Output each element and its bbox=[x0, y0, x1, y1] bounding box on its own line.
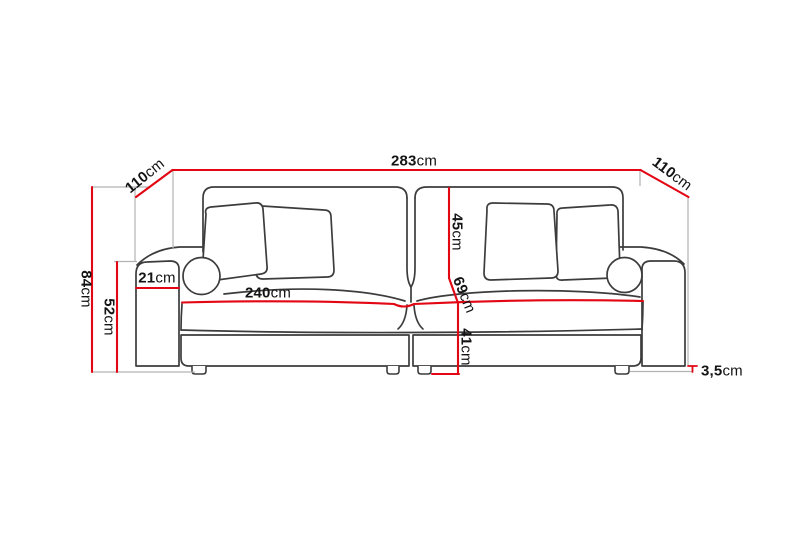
sofa-dimension-diagram: 283cm 110cm 110cm 84cm 52cm 21cm 240cm 4… bbox=[0, 0, 800, 533]
pillow-right-front bbox=[484, 203, 558, 280]
leg bbox=[387, 366, 399, 374]
dim-value: 3,5 bbox=[701, 363, 722, 380]
dim-unit: cm bbox=[78, 287, 95, 307]
armrest-right bbox=[642, 261, 685, 366]
dim-unit: cm bbox=[271, 285, 291, 302]
bolster-right bbox=[607, 258, 642, 293]
leg bbox=[418, 366, 431, 374]
bolster-left bbox=[183, 258, 220, 295]
dim-label-arm-height: 52cm bbox=[102, 298, 117, 336]
dim-unit: cm bbox=[417, 153, 437, 170]
dim-unit: cm bbox=[155, 270, 175, 287]
dim-label-seat-height: 41cm bbox=[459, 328, 474, 366]
leg bbox=[192, 366, 206, 374]
dim-label-arm-width: 21cm bbox=[138, 271, 176, 286]
leg bbox=[615, 366, 629, 374]
sofa-legs bbox=[192, 366, 629, 374]
dim-unit: cm bbox=[449, 230, 466, 250]
dim-value: 41 bbox=[458, 328, 475, 345]
dim-value: 21 bbox=[138, 270, 155, 287]
back-pillows bbox=[202, 203, 620, 281]
dim-value: 52 bbox=[101, 298, 118, 315]
dim-label-total-height: 84cm bbox=[79, 270, 94, 308]
sofa-base bbox=[181, 335, 641, 366]
dim-value: 283 bbox=[391, 153, 417, 170]
dim-unit: cm bbox=[458, 345, 475, 365]
dim-label-total-width: 283cm bbox=[391, 154, 437, 169]
sofa-outline-svg bbox=[0, 0, 800, 533]
dim-unit: cm bbox=[722, 363, 742, 380]
dim-label-seat-width: 240cm bbox=[245, 286, 291, 301]
dim-value: 84 bbox=[78, 270, 95, 287]
dim-label-leg-height: 3,5cm bbox=[701, 364, 743, 379]
dim-value: 240 bbox=[245, 285, 271, 302]
dim-value: 45 bbox=[449, 213, 466, 230]
dim-label-back-cushion-height: 45cm bbox=[450, 213, 465, 251]
dim-unit: cm bbox=[101, 315, 118, 335]
